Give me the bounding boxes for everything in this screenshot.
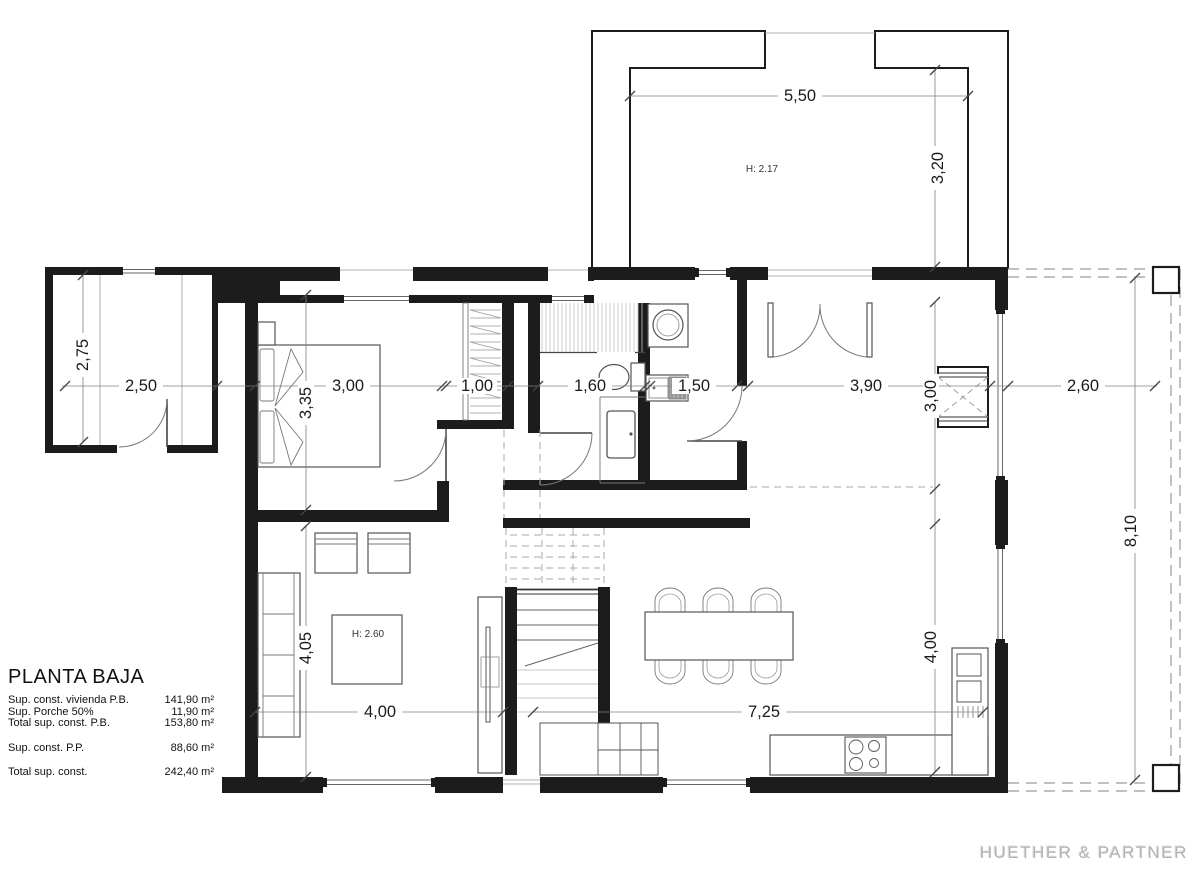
title-block: PLANTA BAJA Sup. const. vivienda P.B. 14… bbox=[8, 666, 214, 779]
dim-dining-width: 7,25 bbox=[748, 703, 780, 721]
tv-unit bbox=[478, 597, 502, 773]
porch-column bbox=[1153, 765, 1179, 791]
dim-hall-width: 3,90 bbox=[850, 377, 882, 395]
porch-column bbox=[1153, 267, 1179, 293]
area-label: Sup. const. vivienda P.B. bbox=[8, 695, 129, 707]
dim-garage-width: 5,50 bbox=[784, 87, 816, 105]
entry-door bbox=[119, 399, 167, 447]
dim-utility-width: 1,50 bbox=[678, 377, 710, 395]
dim-terrace-width: 2,60 bbox=[1067, 377, 1099, 395]
bedroom-door bbox=[394, 429, 446, 481]
living-furniture bbox=[258, 533, 502, 773]
area-value: 153,80 m² bbox=[164, 718, 214, 730]
kitchen bbox=[770, 648, 988, 775]
wardrobe bbox=[463, 303, 501, 420]
dining-chair bbox=[703, 659, 733, 684]
area-row: Sup. const. vivienda P.B. 141,90 m² bbox=[8, 695, 214, 707]
dim-wardrobe-width: 1,00 bbox=[461, 377, 493, 395]
bathroom-door bbox=[540, 433, 592, 485]
area-row: Sup. const. P.P. 88,60 m² bbox=[8, 743, 214, 755]
shower bbox=[540, 303, 645, 353]
firm-signature: HUETHER & PARTNER bbox=[980, 843, 1188, 863]
dim-kitchen-depth: 4,00 bbox=[922, 631, 940, 663]
armchair bbox=[368, 533, 410, 573]
dim-garage-depth: 3,20 bbox=[929, 152, 947, 184]
plan-title: PLANTA BAJA bbox=[8, 666, 214, 689]
area-value: 242,40 m² bbox=[164, 767, 214, 779]
dim-terrace-depth: 8,10 bbox=[1122, 515, 1140, 547]
garage-height-label: H: 2.17 bbox=[746, 164, 779, 175]
area-value: 88,60 m² bbox=[171, 743, 214, 755]
dining-chair bbox=[751, 588, 781, 613]
dining-table bbox=[645, 612, 793, 660]
dim-bedroom-depth: 3,35 bbox=[297, 387, 315, 419]
dim-entry-porch-width: 2,50 bbox=[125, 377, 157, 395]
area-row: Total sup. const. P.B. 153,80 m² bbox=[8, 718, 214, 730]
floor-plan-sheet: 5,50 3,20 H: 2.17 2,75 2,50 3,00 3,35 1,… bbox=[0, 0, 1200, 869]
area-value: 141,90 m² bbox=[164, 695, 214, 707]
dining-chair bbox=[703, 588, 733, 613]
dining-chair bbox=[655, 659, 685, 684]
armchair bbox=[315, 533, 357, 573]
dim-living-depth: 4,05 bbox=[297, 632, 315, 664]
terrace-outline bbox=[1008, 267, 1180, 791]
garage-double-door bbox=[768, 303, 872, 357]
dining-chair bbox=[655, 588, 685, 613]
living-height-label: H: 2.60 bbox=[352, 629, 385, 640]
dining-chair bbox=[751, 659, 781, 684]
dining-set bbox=[645, 588, 793, 684]
fireplace bbox=[938, 367, 988, 427]
dim-bathroom-width: 1,60 bbox=[574, 377, 606, 395]
dim-hall-depth: 3,00 bbox=[922, 380, 940, 412]
dim-living-width: 4,00 bbox=[364, 703, 396, 721]
nightstand bbox=[258, 322, 275, 345]
coffee-table bbox=[332, 615, 402, 684]
area-label: Sup. const. P.P. bbox=[8, 743, 84, 755]
staircase bbox=[506, 528, 658, 775]
area-label: Total sup. const. bbox=[8, 767, 88, 779]
area-label: Total sup. const. P.B. bbox=[8, 718, 110, 730]
area-row: Total sup. const. 242,40 m² bbox=[8, 767, 214, 779]
washing-machine bbox=[648, 304, 688, 347]
dim-entry-porch-depth: 2,75 bbox=[74, 339, 92, 371]
sofa bbox=[258, 573, 300, 737]
stair-winders bbox=[540, 723, 658, 775]
dim-bedroom-width: 3,00 bbox=[332, 377, 364, 395]
